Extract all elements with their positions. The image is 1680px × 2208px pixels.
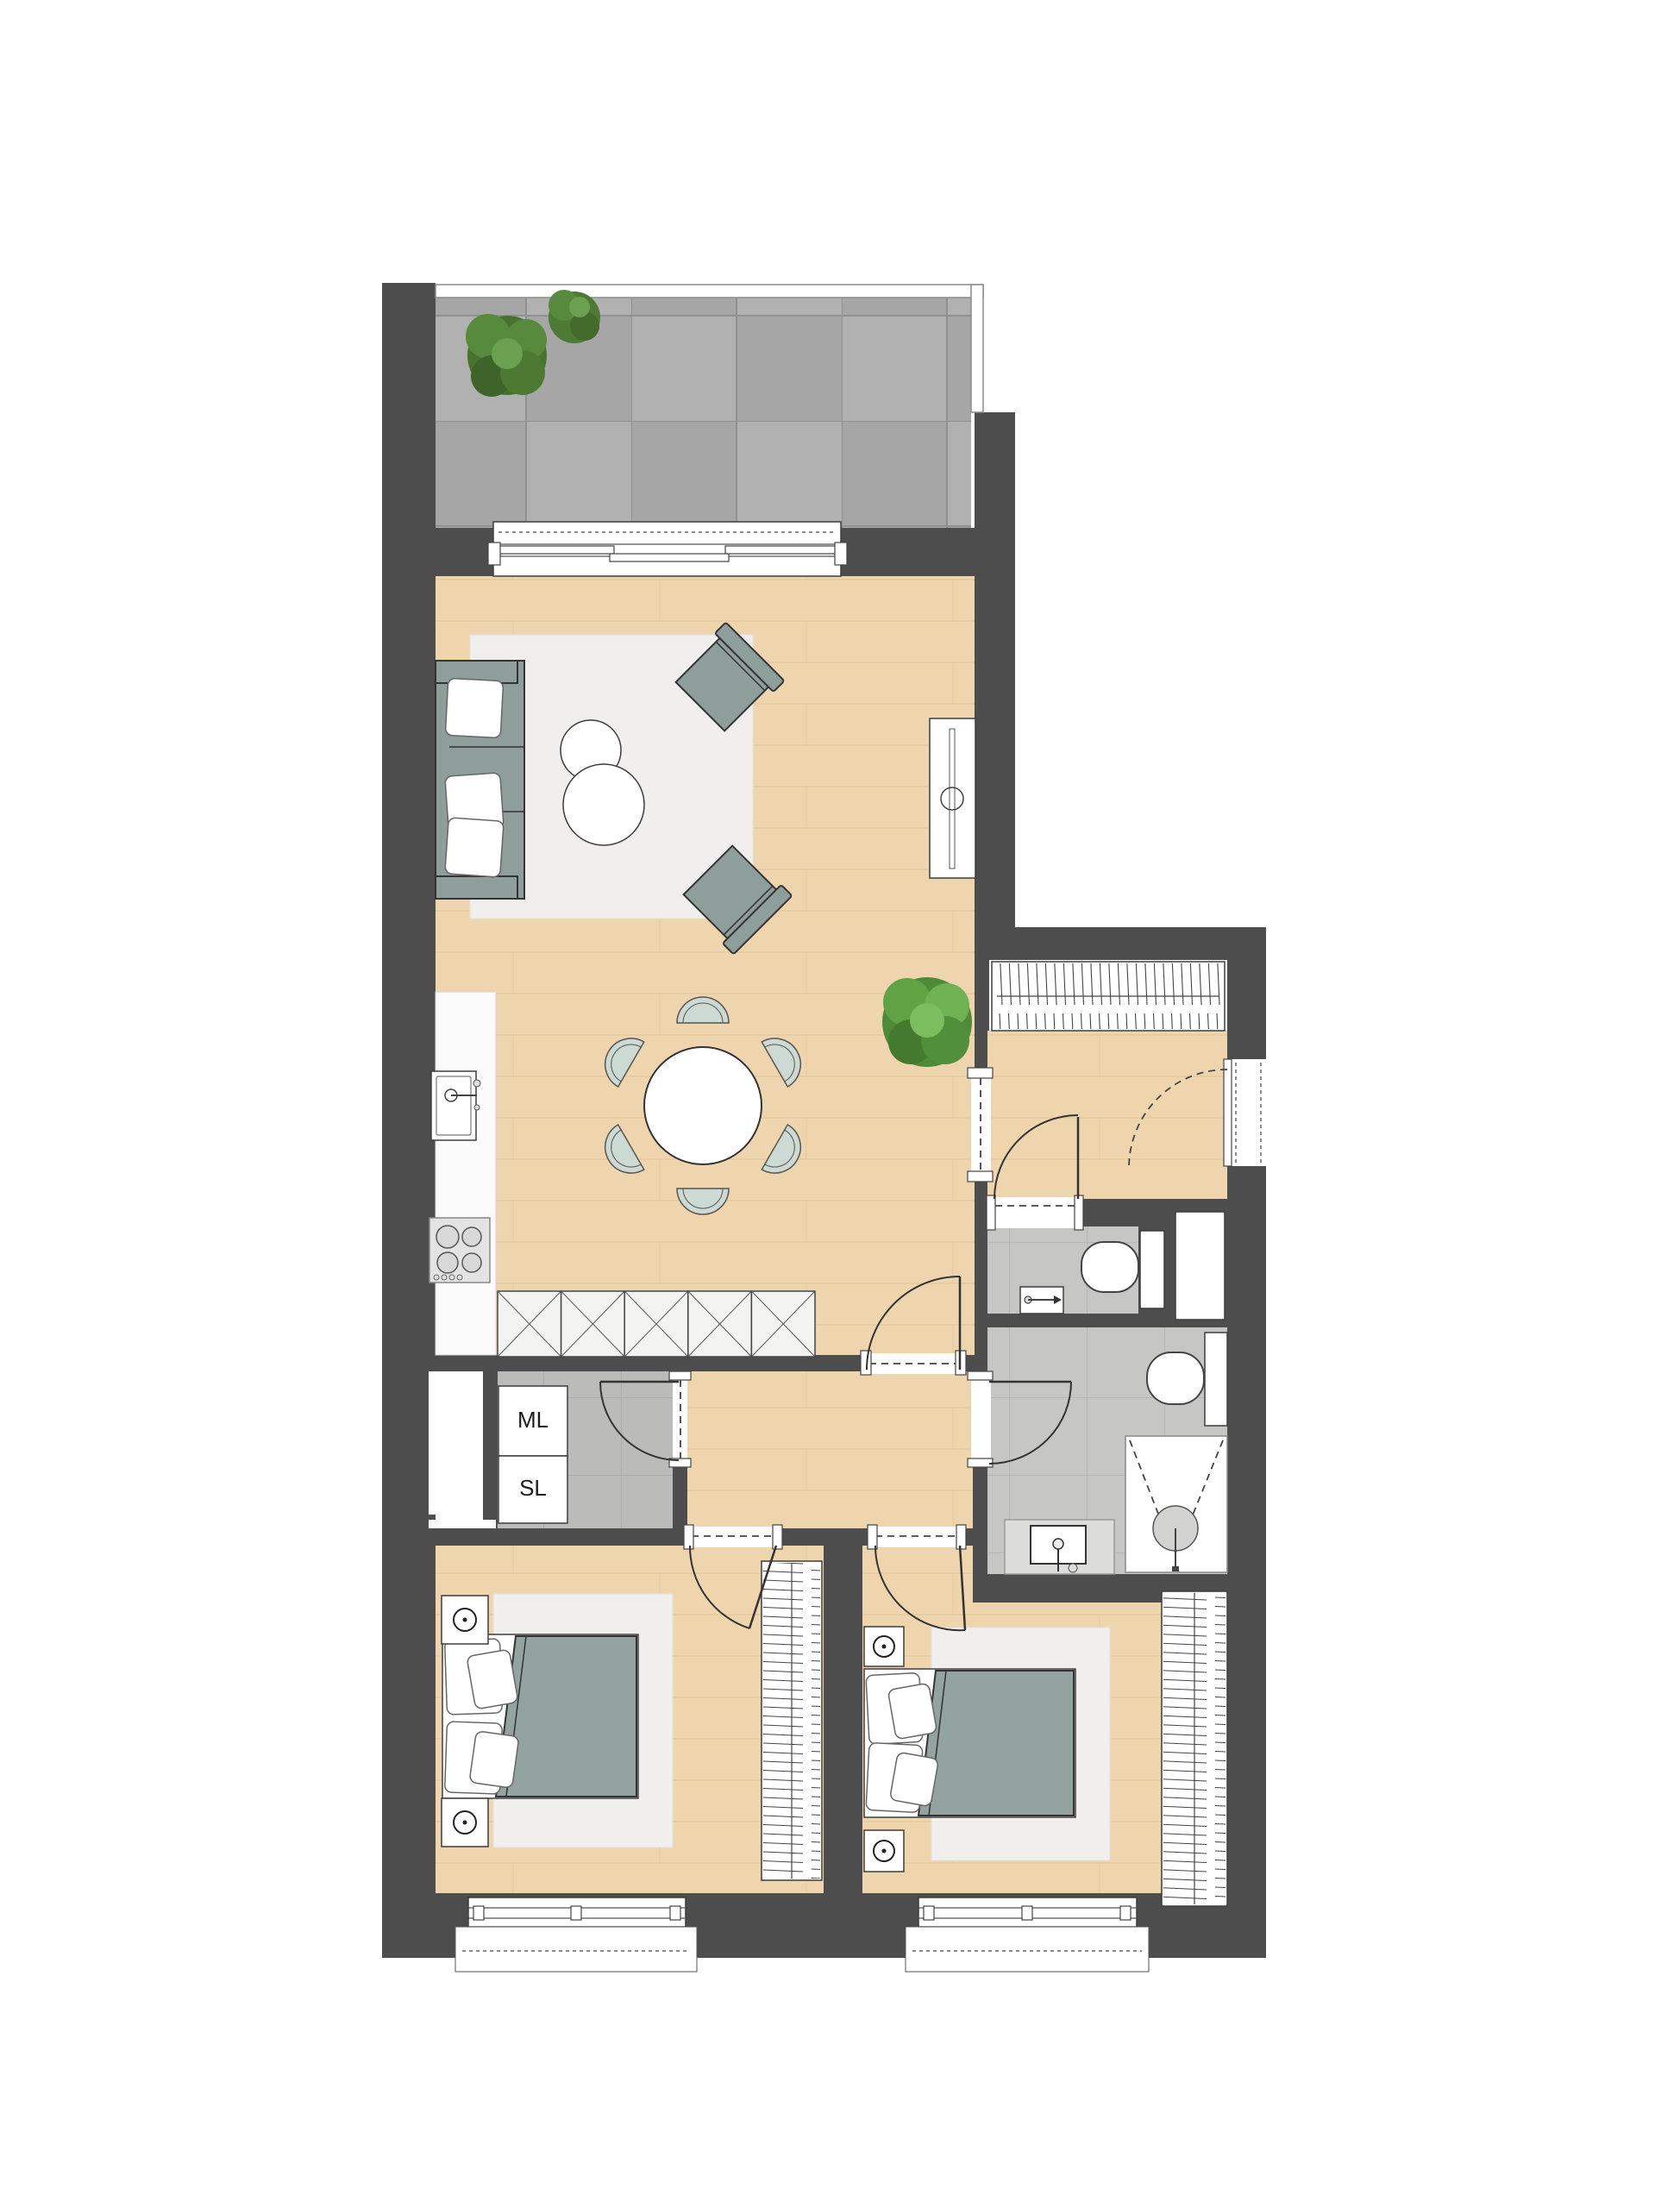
apartment-floorplan: ML SL [0,0,1680,2208]
wall-bedroom-separator [824,1546,862,1893]
corridor-floor [687,1371,973,1528]
wall-right-upper [975,412,1015,960]
wall-hall-top [975,927,1266,960]
bedroom2-nightstand-top [864,1627,904,1666]
shower [1125,1436,1227,1572]
bedroom1-nightstand-bottom [442,1798,488,1847]
sideboard [930,718,975,878]
kitchen-counter [436,992,496,1355]
dryer-label: SL [519,1475,547,1501]
laundry-shaft-strip [429,1520,496,1528]
laundry-shaft [429,1371,483,1515]
living-plant-icon [882,977,972,1067]
opening-living-hall [968,1068,993,1182]
kitchen-stove [429,1218,490,1283]
wc-shaft [1175,1212,1225,1320]
bedroom1-bed [442,1634,638,1798]
bedroom1-wardrobe [762,1561,822,1880]
coat-closet [992,962,1225,1031]
washing-machine-label: ML [517,1407,549,1433]
entrance-hall-floor [987,1031,1227,1199]
terrace-sliding-window [488,522,847,576]
wall-laundry-left [483,1371,498,1528]
bedroom2-nightstand-bottom [864,1830,904,1872]
bedroom2-wardrobe [1162,1591,1227,1906]
wc-sink [1020,1287,1063,1314]
terrace-railing-top [436,285,983,298]
sofa [436,661,524,899]
floorplan-page: ML SL [0,0,1680,2208]
terrace-railing-right [971,285,983,412]
kitchen-sink [431,1071,480,1140]
bedroom1-window [455,1897,697,1972]
terrace-plant-large-icon [466,314,547,397]
bedroom2-bed [864,1669,1075,1817]
bedroom2-window [906,1897,1149,1972]
kitchen-tall-cabinets [498,1291,815,1357]
wall-left [382,283,436,1958]
bathroom-vanity [1005,1520,1114,1574]
coffee-table-large [563,764,644,845]
dining-table [644,1047,762,1164]
bedroom1-nightstand-top [442,1596,488,1644]
